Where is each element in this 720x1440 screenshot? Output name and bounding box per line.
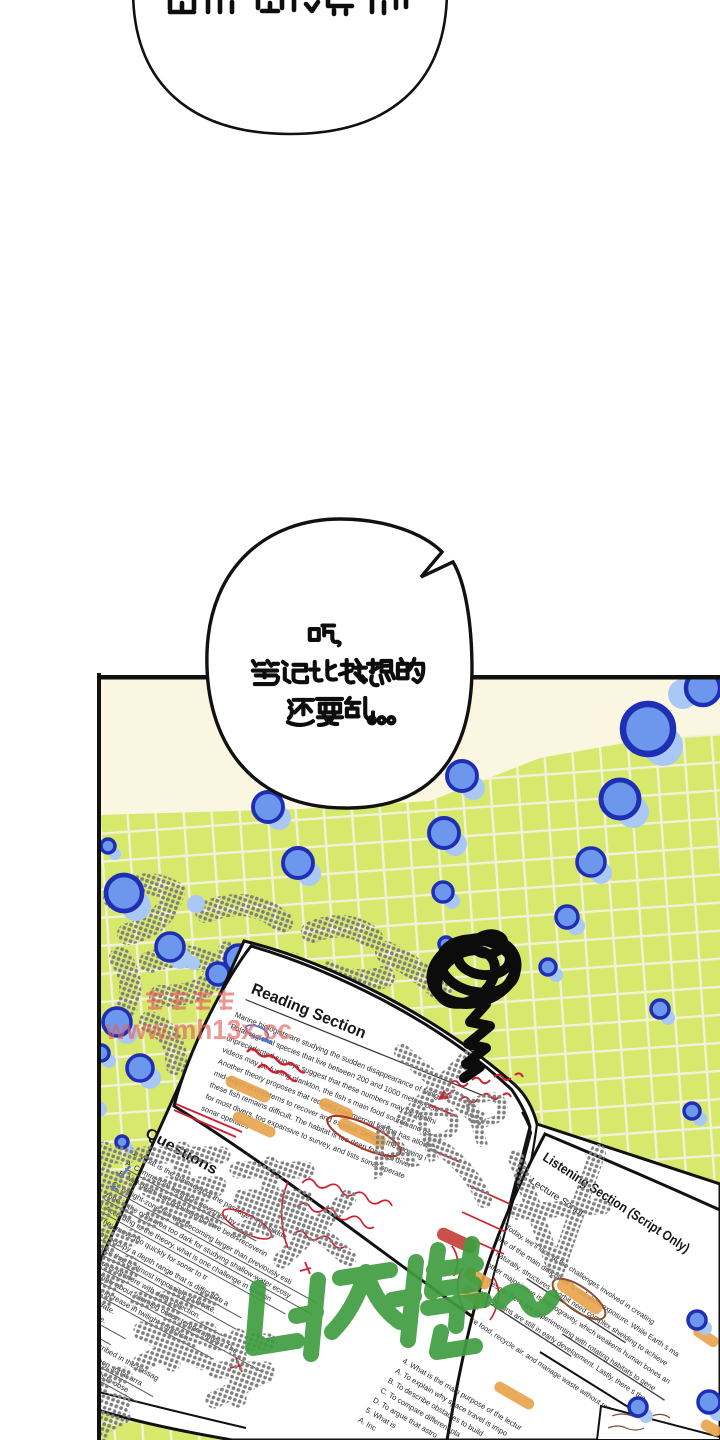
svg-text:www.mh13x.cc: www.mh13x.cc [105, 1014, 292, 1045]
